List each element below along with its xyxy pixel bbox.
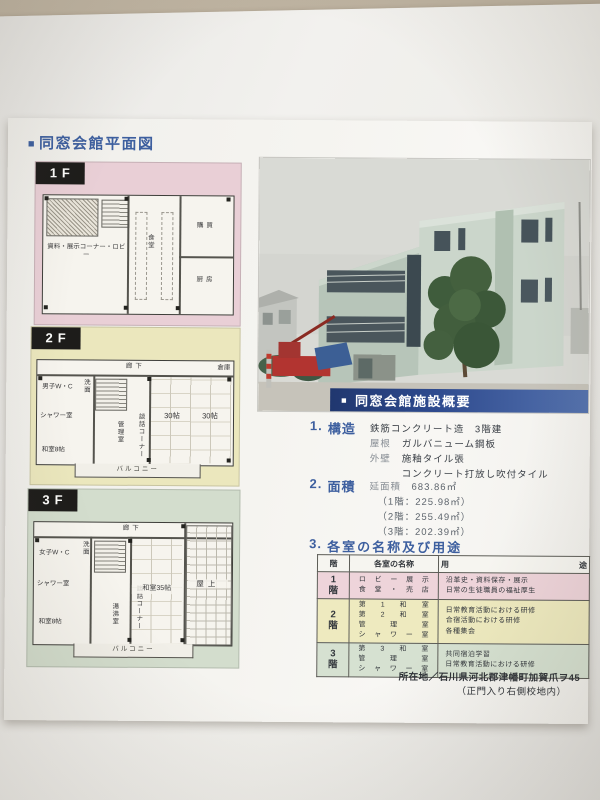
balcony-2f: バルコニー xyxy=(75,463,201,478)
structure-line1: 鉄筋コンクリート造 3階建 xyxy=(370,421,502,436)
address-line1: 所在地／石川県河北郡津幡町加賀爪ヲ45 xyxy=(399,669,581,684)
use-item: 日常の生徒職員の福祉厚生 xyxy=(441,586,587,598)
building-photo-illustration xyxy=(258,158,590,413)
column-marker xyxy=(147,458,151,462)
page-title: ■同窓会館平面図 xyxy=(28,132,155,154)
use-item: 合宿活動における研修 xyxy=(441,616,587,628)
wall xyxy=(179,256,233,258)
desk-surface: ■同窓会館平面図 1F 資料・展示コーナー・ロビー 食堂 購買 厨房 xyxy=(0,0,600,800)
facility-overview-title: 同窓会館施設概要 xyxy=(355,390,471,410)
room-label-washitsu35: 和室35帖 xyxy=(132,585,182,594)
column-marker xyxy=(181,524,185,528)
wall xyxy=(179,196,181,314)
room-label-corridor: 廊下 xyxy=(112,525,152,533)
room-label-kanri: 管理室 xyxy=(115,421,123,444)
wall xyxy=(89,537,91,645)
column-marker xyxy=(180,638,184,642)
table-row-floor2: 2 階 第1和室 第2和室 管理室 シャワー室 日常教育活動における研修 合宿活… xyxy=(317,599,589,644)
floorplan-2f-panel: 2F 廊下 倉庫 男子W・C 洗面 シャワー室 和室8帖 管理室 談話コーナー … xyxy=(30,326,241,486)
column-marker xyxy=(127,638,131,642)
room-label-shower: シャワー室 xyxy=(37,580,70,588)
floor-3f-tab: 3F xyxy=(28,489,77,511)
wall xyxy=(127,196,129,314)
address-line2: （正門入り右側校地内） xyxy=(398,683,580,698)
floor-suffix: 階 xyxy=(328,659,338,670)
room-label-womens-wc: 女子W・C xyxy=(39,549,69,557)
room-label-washitsu8: 和室8帖 xyxy=(42,446,65,454)
wall xyxy=(93,375,95,465)
brochure-page: ■同窓会館平面図 1F 資料・展示コーナー・ロビー 食堂 購買 厨房 xyxy=(4,118,592,724)
stairs-1f xyxy=(101,200,129,228)
address-block: 所在地／石川県河北郡津幡町加賀爪ヲ45 （正門入り右側校地内） xyxy=(398,669,580,698)
column-marker xyxy=(176,306,180,310)
room-label-30jo-b: 30帖 xyxy=(193,411,227,421)
column-marker xyxy=(38,376,42,380)
column-marker xyxy=(128,539,132,543)
roof-label: 屋根 xyxy=(370,436,391,450)
area-floor1: （1階：225.98㎡） xyxy=(377,494,471,509)
floor-number: 3 xyxy=(330,648,335,659)
dining-tables xyxy=(161,212,174,300)
section2-number: 2. xyxy=(310,476,323,491)
use-item: 各種集会 xyxy=(440,627,586,639)
floor1-cell: 1 階 xyxy=(317,572,349,599)
floor2-uses: 日常教育活動における研修 合宿活動における研修 各種集会 xyxy=(438,599,589,644)
floor-suffix: 階 xyxy=(329,585,339,596)
header-room-name: 各室の名称 xyxy=(349,555,438,573)
column-marker xyxy=(125,197,129,201)
page-title-text: 同窓会館平面図 xyxy=(39,135,155,153)
balcony-3f: バルコニー xyxy=(73,643,193,658)
dining-tables xyxy=(135,212,148,300)
room-label-washroom: 洗面 xyxy=(81,378,89,393)
room-name: 第2和室 xyxy=(352,611,436,622)
stairs-2f xyxy=(95,379,127,411)
floor1-uses: 沿革史・資料保存・展示 日常の生徒職員の福祉厚生 xyxy=(438,572,589,600)
room-name: 第3和室 xyxy=(351,644,435,655)
room-label-storage: 倉庫 xyxy=(217,364,230,372)
column-marker xyxy=(44,305,48,309)
floor1-names: ロビー展示 食堂・売店 xyxy=(349,572,438,600)
roof-value: ガルバニューム鋼板 xyxy=(402,436,496,451)
floorplan-1f-panel: 1F 資料・展示コーナー・ロビー 食堂 購買 厨房 xyxy=(34,161,242,326)
column-marker xyxy=(124,306,128,310)
section1-title: 構造 xyxy=(328,418,356,437)
room-label-yuwakashi: 湯沸室 xyxy=(110,603,118,626)
room-label-washroom: 洗面 xyxy=(80,540,88,555)
address-label: 所在地／ xyxy=(399,672,439,683)
floorplan-3f-drawing: 廊下 女子W・C 洗面 シャワー室 和室8帖 湯沸室 談話コーナー 和室35帖 … xyxy=(32,521,233,646)
section3-title: 各室の名称及び用途 xyxy=(327,536,462,556)
wall-label: 外壁 xyxy=(370,451,391,465)
room-name: ロビー展示 xyxy=(352,575,436,586)
column-marker xyxy=(35,538,39,542)
square-bullet-icon: ■ xyxy=(28,138,36,150)
floorplan-1f-drawing: 資料・展示コーナー・ロビー 食堂 購買 厨房 xyxy=(42,194,235,315)
column-marker xyxy=(227,197,231,201)
floorplan-3f-panel: 3F 廊下 女子W・C 洗面 シャワー室 和室8帖 湯沸室 談話コーナー 和室3… xyxy=(26,488,240,668)
room-name: 管理室 xyxy=(351,654,435,665)
room-label-rooftop: 屋上 xyxy=(188,579,228,589)
column-marker xyxy=(227,378,231,382)
header-floor: 階 xyxy=(317,555,349,572)
floor-suffix: 階 xyxy=(328,620,338,631)
floor2-names: 第1和室 第2和室 管理室 シャワー室 xyxy=(349,599,438,643)
floor3-cell: 3 階 xyxy=(317,642,349,676)
section3-number: 3. xyxy=(309,536,322,551)
section1-number: 1. xyxy=(310,418,323,433)
room-label-danwa: 談話コーナー xyxy=(136,413,144,458)
header-use: 用途 xyxy=(438,555,589,573)
table-header-row: 階 各室の名称 用途 xyxy=(317,555,589,574)
column-marker xyxy=(45,196,49,200)
section2-title: 面積 xyxy=(327,476,355,495)
stairs-3f xyxy=(94,541,126,573)
room-name: シャワー室 xyxy=(351,631,435,642)
column-marker xyxy=(227,459,231,463)
room-label-lobby: 資料・展示コーナー・ロビー xyxy=(47,243,125,260)
table-row-floor1: 1 階 ロビー展示 食堂・売店 沿革史・資料保存・展示 日常の生徒職員の福祉厚生 xyxy=(317,572,589,601)
room-label-dining: 食堂 xyxy=(145,234,153,249)
rooms-usage-table: 階 各室の名称 用途 1 階 ロビー展示 食堂・売店 沿革史・資料保存・展示 日… xyxy=(316,554,590,678)
facility-overview-banner: ■ 同窓会館施設概要 xyxy=(330,388,588,413)
floor2-cell: 2 階 xyxy=(317,599,349,643)
room-label-shop: 購買 xyxy=(183,222,229,230)
column-marker xyxy=(147,377,151,381)
floor-1f-tab: 1F xyxy=(36,162,85,184)
total-area-value: 683.86㎡ xyxy=(412,479,458,493)
room-label-kitchen: 厨房 xyxy=(183,276,229,284)
floor-number: 2 xyxy=(330,609,335,620)
square-bullet-icon: ■ xyxy=(341,395,348,405)
room-name: 食堂・売店 xyxy=(352,585,436,596)
room-name: 管理室 xyxy=(352,621,436,632)
area-floor2: （2階：255.49㎡） xyxy=(377,509,471,524)
entrance-hatch-area xyxy=(46,198,98,236)
room-label-30jo-a: 30帖 xyxy=(155,411,189,421)
room-label-mens-wc: 男子W・C xyxy=(42,383,72,391)
floorplan-2f-drawing: 廊下 倉庫 男子W・C 洗面 シャワー室 和室8帖 管理室 談話コーナー 30帖… xyxy=(36,359,235,466)
building-photo xyxy=(258,158,590,413)
room-label-washitsu8: 和室8帖 xyxy=(39,618,62,626)
room-label-corridor: 廊下 xyxy=(115,363,155,371)
room-name: 第1和室 xyxy=(352,600,436,611)
total-area-label: 延面積 xyxy=(370,479,402,493)
wall-value: 施釉タイル張 xyxy=(402,451,465,465)
floor-number: 1 xyxy=(331,574,336,585)
room-label-shower: シャワー室 xyxy=(40,412,73,420)
floor-2f-tab: 2F xyxy=(31,327,80,349)
